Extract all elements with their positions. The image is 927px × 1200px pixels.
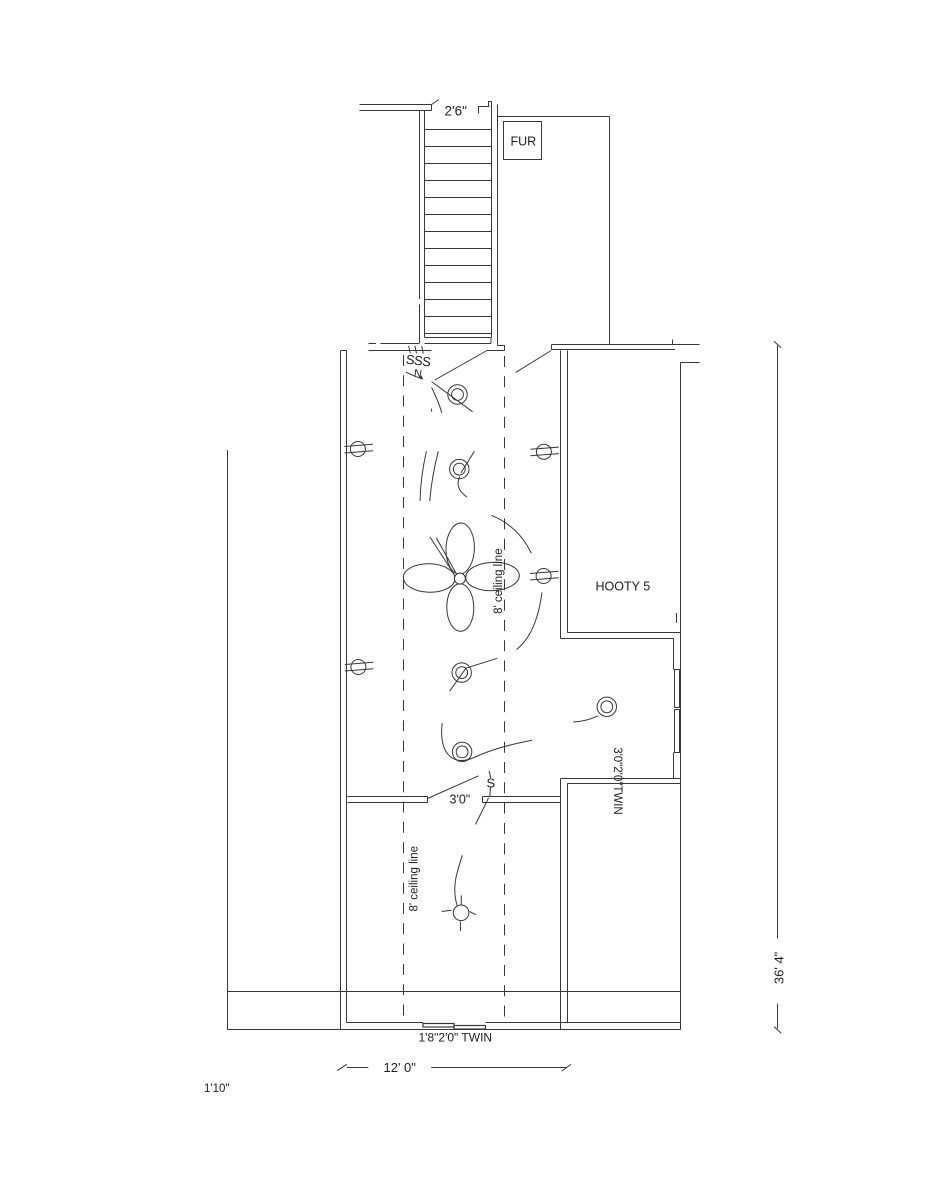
svg-text:FUR: FUR — [511, 135, 537, 149]
svg-text:8' ceiling line: 8' ceiling line — [493, 548, 505, 614]
svg-text:3'0"2'0"TWIN: 3'0"2'0"TWIN — [611, 747, 623, 815]
svg-text:8' ceiling line: 8' ceiling line — [409, 846, 421, 912]
svg-text:HOOTY 5: HOOTY 5 — [596, 580, 651, 594]
svg-text:SSS: SSS — [405, 352, 432, 370]
svg-text:3'0": 3'0" — [450, 793, 471, 807]
svg-text:12' 0": 12' 0" — [384, 1060, 417, 1075]
svg-text:1'8"2'0" TWIN: 1'8"2'0" TWIN — [419, 1031, 493, 1045]
svg-text:1'10": 1'10" — [204, 1083, 229, 1095]
svg-text:2'6": 2'6" — [445, 104, 468, 119]
svg-text:36' 4": 36' 4" — [772, 951, 787, 984]
